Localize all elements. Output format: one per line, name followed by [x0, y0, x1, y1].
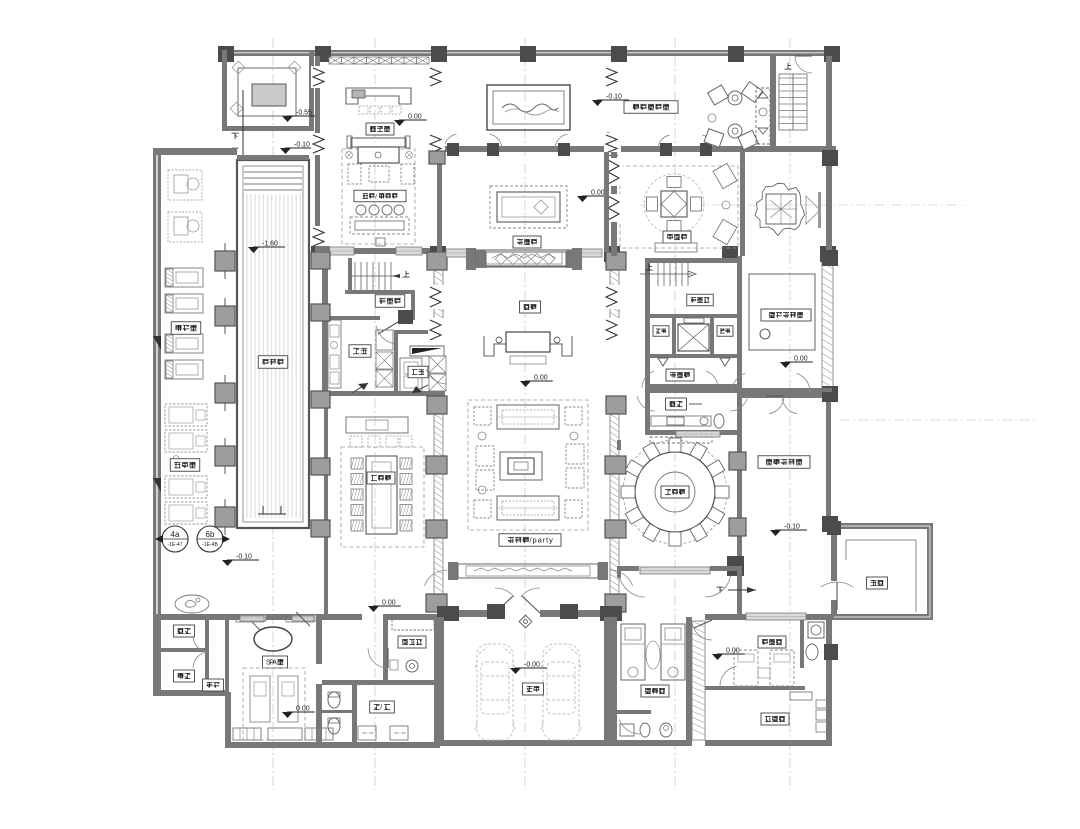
- svg-text:0.00: 0.00: [591, 190, 605, 197]
- svg-text:-1.60: -1.60: [262, 241, 278, 248]
- svg-text:0.00: 0.00: [408, 114, 422, 121]
- svg-text:-0.10: -0.10: [294, 142, 310, 149]
- svg-text:4a: 4a: [171, 530, 180, 539]
- svg-text:-0.10: -0.10: [784, 524, 800, 531]
- svg-text:/: /: [380, 705, 382, 712]
- svg-text:-0.55: -0.55: [296, 110, 312, 117]
- svg-text:6b: 6b: [206, 530, 215, 539]
- svg-text:-1E-47: -1E-47: [167, 542, 182, 548]
- svg-text:/: /: [375, 193, 377, 200]
- svg-text:0.00: 0.00: [726, 648, 740, 655]
- svg-text:0.00: 0.00: [296, 706, 310, 713]
- svg-text:SPA: SPA: [266, 660, 277, 667]
- svg-text:-1E-4B: -1E-4B: [202, 542, 218, 548]
- svg-text:-0.10: -0.10: [236, 554, 252, 561]
- svg-text:0.00: 0.00: [794, 356, 808, 363]
- svg-text:0.00: 0.00: [534, 375, 548, 382]
- svg-text:-0.10: -0.10: [606, 94, 622, 101]
- svg-text:/party: /party: [530, 536, 554, 545]
- svg-text:-0.00: -0.00: [524, 662, 540, 669]
- svg-text:0.00: 0.00: [382, 600, 396, 607]
